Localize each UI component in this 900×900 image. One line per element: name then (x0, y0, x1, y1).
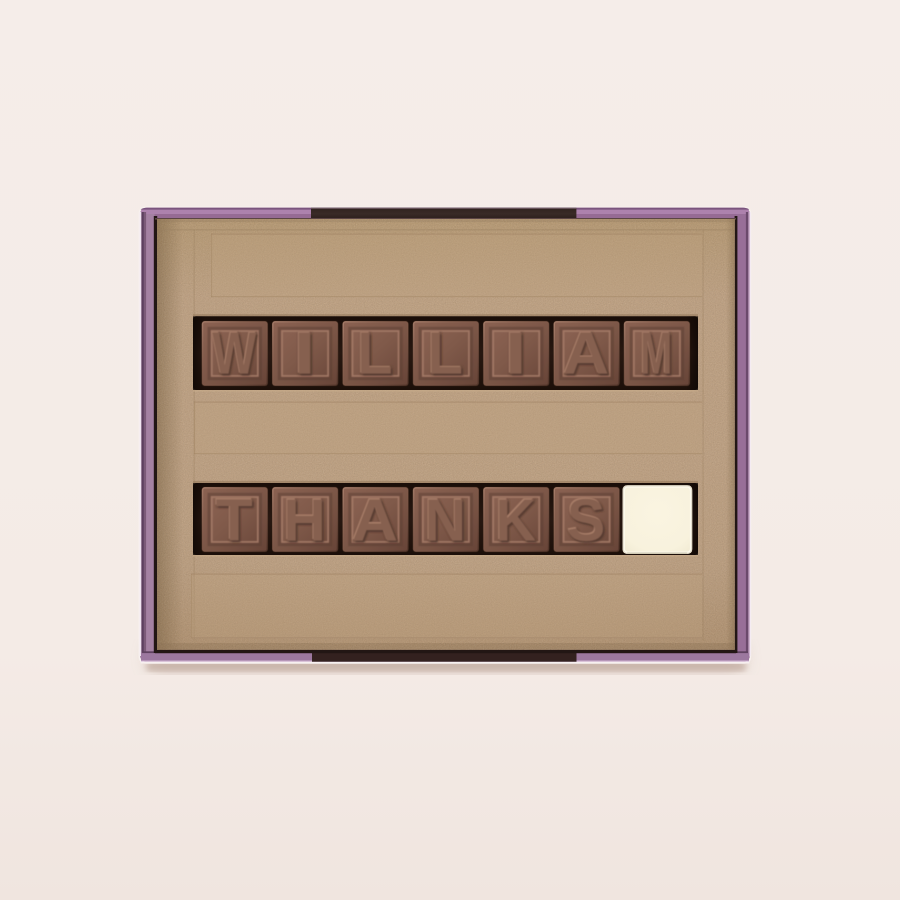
svg-text:I: I (505, 321, 527, 387)
svg-text:L: L (357, 321, 392, 387)
svg-text:H: H (283, 487, 326, 553)
svg-text:M: M (640, 321, 672, 387)
svg-text:S: S (567, 487, 605, 553)
svg-text:A: A (352, 487, 398, 553)
svg-text:W: W (212, 321, 256, 387)
svg-text:N: N (425, 487, 466, 553)
svg-text:A: A (563, 321, 609, 387)
svg-text:K: K (495, 487, 536, 553)
svg-text:I: I (294, 321, 316, 387)
svg-text:L: L (428, 321, 463, 387)
svg-text:T: T (216, 487, 253, 553)
